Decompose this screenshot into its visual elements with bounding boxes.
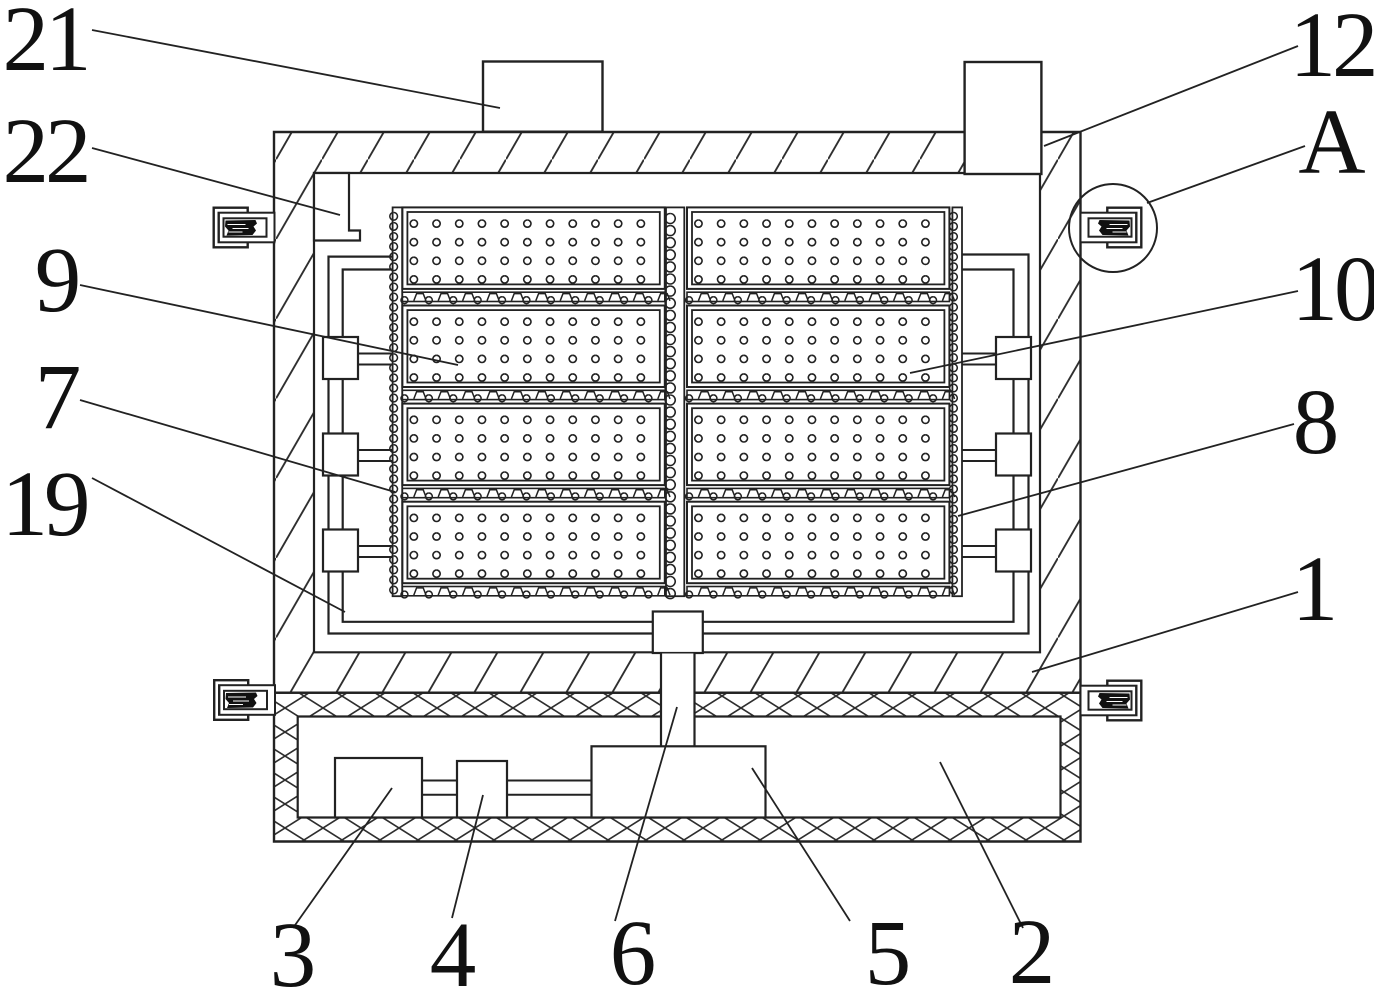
svg-text:4: 4 bbox=[430, 904, 476, 987]
svg-text:10: 10 bbox=[1292, 238, 1374, 341]
svg-text:9: 9 bbox=[35, 229, 78, 332]
svg-text:7: 7 bbox=[35, 346, 79, 449]
svg-text:12: 12 bbox=[1290, 0, 1374, 97]
svg-text:6: 6 bbox=[610, 902, 654, 987]
svg-text:8: 8 bbox=[1293, 371, 1336, 474]
svg-text:19: 19 bbox=[2, 453, 88, 556]
svg-text:1: 1 bbox=[1292, 538, 1335, 641]
svg-text:21: 21 bbox=[3, 0, 88, 91]
svg-text:22: 22 bbox=[3, 100, 88, 203]
svg-text:3: 3 bbox=[270, 904, 313, 987]
svg-text:2: 2 bbox=[1009, 901, 1052, 987]
svg-text:A: A bbox=[1298, 91, 1365, 194]
svg-text:5: 5 bbox=[865, 902, 908, 987]
